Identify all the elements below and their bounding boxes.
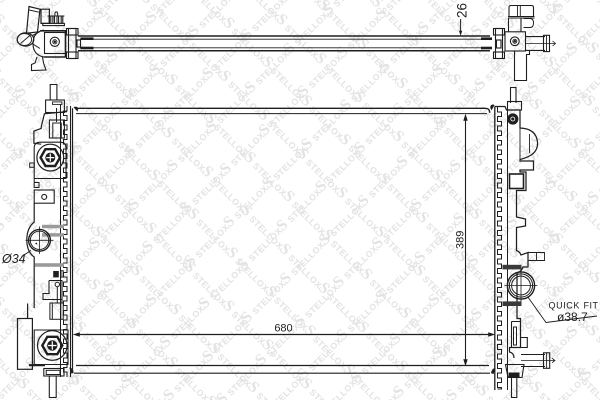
svg-text:STELLOX: STELLOX — [98, 204, 136, 242]
svg-text:STELLOX: STELLOX — [293, 10, 331, 48]
svg-text:STELLOX: STELLOX — [331, 0, 369, 9]
svg-text:STELLOX: STELLOX — [579, 63, 600, 101]
svg-text:STELLOX: STELLOX — [211, 317, 249, 355]
svg-text:STELLOX: STELLOX — [349, 66, 387, 104]
svg-text:STELLOX: STELLOX — [324, 148, 362, 186]
svg-text:STELLOX: STELLOX — [381, 204, 419, 242]
svg-text:STELLOX: STELLOX — [211, 35, 249, 73]
svg-text:STELLOX: STELLOX — [406, 123, 444, 161]
svg-text:STELLOX: STELLOX — [102, 0, 140, 12]
svg-text:STELLOX: STELLOX — [384, 0, 422, 12]
svg-text:389: 389 — [454, 231, 466, 249]
svg-text:STELLOX: STELLOX — [155, 0, 193, 16]
svg-text:STELLOX: STELLOX — [569, 0, 600, 8]
svg-text:STELLOX: STELLOX — [522, 6, 560, 44]
svg-text:ø38.7: ø38.7 — [557, 310, 588, 324]
svg-text:STELLOX: STELLOX — [519, 236, 557, 274]
svg-text:STELLOX: STELLOX — [155, 261, 193, 299]
svg-text:STELLOX: STELLOX — [208, 264, 246, 302]
svg-text:STELLOX: STELLOX — [438, 261, 476, 299]
svg-text:26: 26 — [455, 3, 470, 18]
svg-text:STELLOX: STELLOX — [268, 91, 306, 129]
svg-text:680: 680 — [274, 322, 292, 334]
svg-text:Ø34: Ø34 — [1, 252, 26, 266]
